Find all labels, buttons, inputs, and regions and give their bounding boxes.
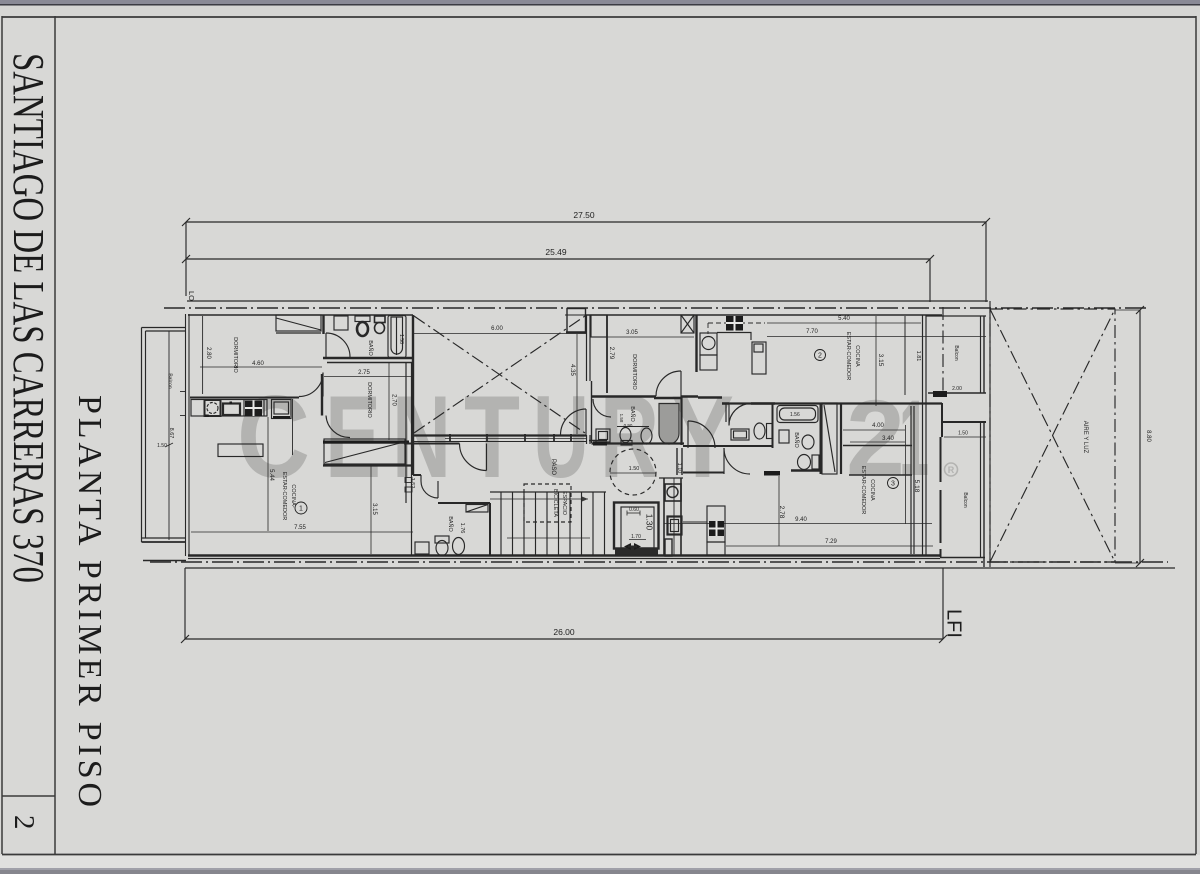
svg-text:1.50: 1.50 <box>629 466 640 472</box>
svg-text:C: C <box>237 371 310 502</box>
svg-text:6.00: 6.00 <box>491 326 503 332</box>
svg-text:BAÑO: BAÑO <box>629 406 636 422</box>
svg-text:1.58: 1.58 <box>398 334 404 344</box>
svg-text:2.78: 2.78 <box>778 506 785 519</box>
svg-text:1.76: 1.76 <box>459 523 465 534</box>
svg-text:9.40: 9.40 <box>795 517 807 523</box>
svg-text:COCINA: COCINA <box>854 345 860 367</box>
svg-text:COCINA-: COCINA- <box>290 484 296 507</box>
svg-text:ESTAR-COMEDOR: ESTAR-COMEDOR <box>281 472 287 521</box>
svg-text:1.56: 1.56 <box>790 412 800 418</box>
svg-text:Balcon: Balcon <box>962 492 968 508</box>
svg-text:5.44: 5.44 <box>268 469 274 481</box>
svg-text:0.90: 0.90 <box>624 423 633 428</box>
svg-text:27.50: 27.50 <box>573 210 595 220</box>
svg-text:5.18: 5.18 <box>913 480 920 493</box>
svg-text:DORMITORIO: DORMITORIO <box>366 382 372 418</box>
svg-text:2.75: 2.75 <box>358 370 370 376</box>
svg-text:PLANTA PRIMER PISO: PLANTA PRIMER PISO <box>71 395 108 807</box>
svg-text:7.29: 7.29 <box>825 539 837 545</box>
svg-text:4.60: 4.60 <box>252 361 264 367</box>
svg-text:2.70: 2.70 <box>391 394 397 406</box>
svg-text:BICICLETA: BICICLETA <box>552 489 558 517</box>
svg-text:2.80: 2.80 <box>205 347 211 359</box>
svg-text:2.00: 2.00 <box>952 386 962 392</box>
svg-text:AIRE Y LUZ: AIRE Y LUZ <box>1082 421 1088 454</box>
svg-text:3.15: 3.15 <box>877 354 884 367</box>
svg-text:DORMITORIO: DORMITORIO <box>631 354 637 390</box>
svg-text:R: R <box>600 371 659 502</box>
svg-text:1.50: 1.50 <box>958 431 968 437</box>
svg-text:26.00: 26.00 <box>553 627 575 637</box>
svg-text:1.70: 1.70 <box>631 534 641 540</box>
svg-text:ESTAR-COMEDOR: ESTAR-COMEDOR <box>845 332 851 381</box>
svg-text:LFI: LFI <box>943 609 965 638</box>
svg-text:7.55: 7.55 <box>294 525 306 531</box>
svg-text:1.30: 1.30 <box>645 514 655 531</box>
svg-text:COCINA: COCINA <box>869 479 875 501</box>
svg-text:3.40: 3.40 <box>882 436 894 442</box>
svg-text:DORMITORIO: DORMITORIO <box>232 337 238 373</box>
svg-text:PASO: PASO <box>550 459 556 476</box>
svg-text:0.60: 0.60 <box>629 507 639 513</box>
svg-text:8.80: 8.80 <box>1145 430 1151 442</box>
svg-text:BAÑO: BAÑO <box>367 340 374 356</box>
svg-text:5.40: 5.40 <box>838 316 850 322</box>
svg-text:SANTIAGO DE LAS CARRERAS 370: SANTIAGO DE LAS CARRERAS 370 <box>4 53 53 583</box>
svg-text:2: 2 <box>8 815 40 830</box>
svg-text:LO: LO <box>187 291 196 301</box>
svg-text:1.50: 1.50 <box>157 443 167 449</box>
svg-text:3: 3 <box>891 481 895 488</box>
svg-text:BAÑO: BAÑO <box>447 516 454 532</box>
svg-text:BAÑO: BAÑO <box>793 432 800 448</box>
svg-text:4.00: 4.00 <box>872 423 884 429</box>
svg-text:2: 2 <box>818 353 822 360</box>
svg-text:8.67: 8.67 <box>168 428 174 439</box>
svg-text:25.49: 25.49 <box>545 247 567 257</box>
svg-text:7.70: 7.70 <box>806 329 818 335</box>
svg-text:Balcon: Balcon <box>953 345 959 361</box>
svg-text:3.05: 3.05 <box>626 330 638 336</box>
svg-text:1.10: 1.10 <box>676 463 682 474</box>
svg-text:4.35: 4.35 <box>569 364 575 376</box>
svg-text:3.15: 3.15 <box>371 503 377 515</box>
svg-text:Balcon: Balcon <box>167 373 173 389</box>
svg-text:R: R <box>948 465 955 475</box>
svg-text:ESTAR-COMEDOR: ESTAR-COMEDOR <box>860 466 866 515</box>
svg-text:1.58: 1.58 <box>619 414 624 423</box>
svg-text:1.52: 1.52 <box>409 478 415 489</box>
svg-text:ESPACIO: ESPACIO <box>561 491 567 516</box>
svg-text:2.79: 2.79 <box>608 347 615 360</box>
svg-text:1: 1 <box>299 506 303 513</box>
svg-text:1.81: 1.81 <box>915 351 921 362</box>
